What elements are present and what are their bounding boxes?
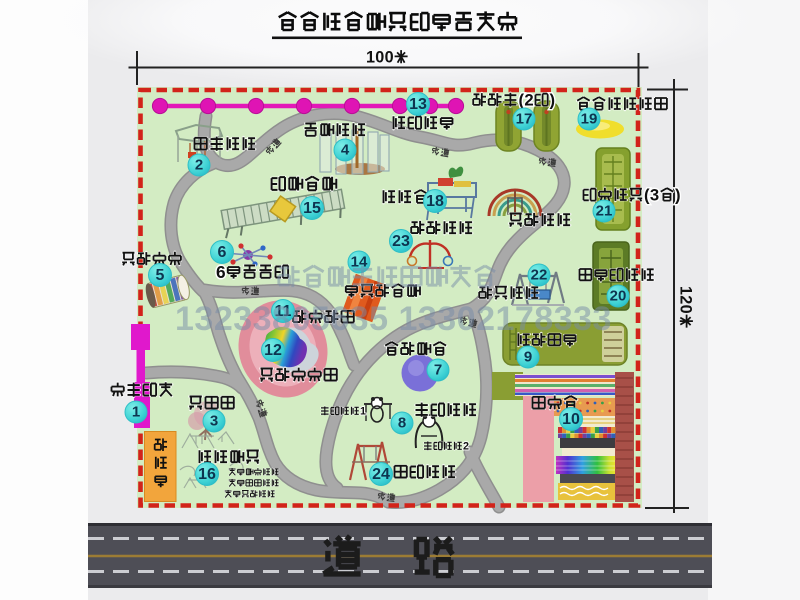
svg-text:16: 16 — [198, 466, 216, 483]
svg-text:3: 3 — [650, 186, 659, 205]
svg-text:12: 12 — [264, 342, 282, 359]
svg-text:24: 24 — [372, 466, 390, 483]
svg-text:3: 3 — [210, 413, 218, 430]
svg-text:6: 6 — [218, 244, 227, 261]
svg-text:2: 2 — [463, 441, 469, 453]
svg-text:1: 1 — [677, 286, 695, 295]
svg-text:5: 5 — [156, 267, 165, 284]
svg-text:8: 8 — [398, 415, 406, 432]
svg-text:23: 23 — [392, 233, 410, 250]
svg-text:1: 1 — [132, 404, 140, 421]
svg-text:0: 0 — [375, 48, 384, 66]
svg-text:1: 1 — [360, 406, 366, 418]
svg-text:9: 9 — [524, 349, 532, 366]
svg-text:10: 10 — [562, 411, 580, 428]
svg-text:21: 21 — [596, 203, 613, 220]
svg-text:0: 0 — [677, 305, 695, 314]
svg-text:4: 4 — [341, 142, 350, 159]
svg-text:15: 15 — [303, 200, 321, 217]
svg-text:20: 20 — [610, 288, 627, 305]
svg-text:): ) — [675, 186, 681, 205]
svg-text:13: 13 — [409, 96, 427, 113]
svg-text:): ) — [550, 91, 556, 110]
svg-text:7: 7 — [434, 362, 442, 379]
svg-text:0: 0 — [385, 48, 394, 66]
svg-text:22: 22 — [531, 267, 548, 284]
svg-text:13233805635 13302178333: 13233805635 13302178333 — [175, 300, 612, 338]
svg-text:18: 18 — [426, 193, 444, 210]
svg-text:6: 6 — [216, 262, 226, 282]
svg-text:2: 2 — [677, 295, 695, 304]
svg-text:17: 17 — [516, 111, 533, 128]
svg-text:2: 2 — [524, 91, 533, 110]
svg-text:2: 2 — [195, 157, 203, 174]
svg-text:19: 19 — [581, 111, 598, 128]
svg-text:1: 1 — [366, 48, 375, 66]
